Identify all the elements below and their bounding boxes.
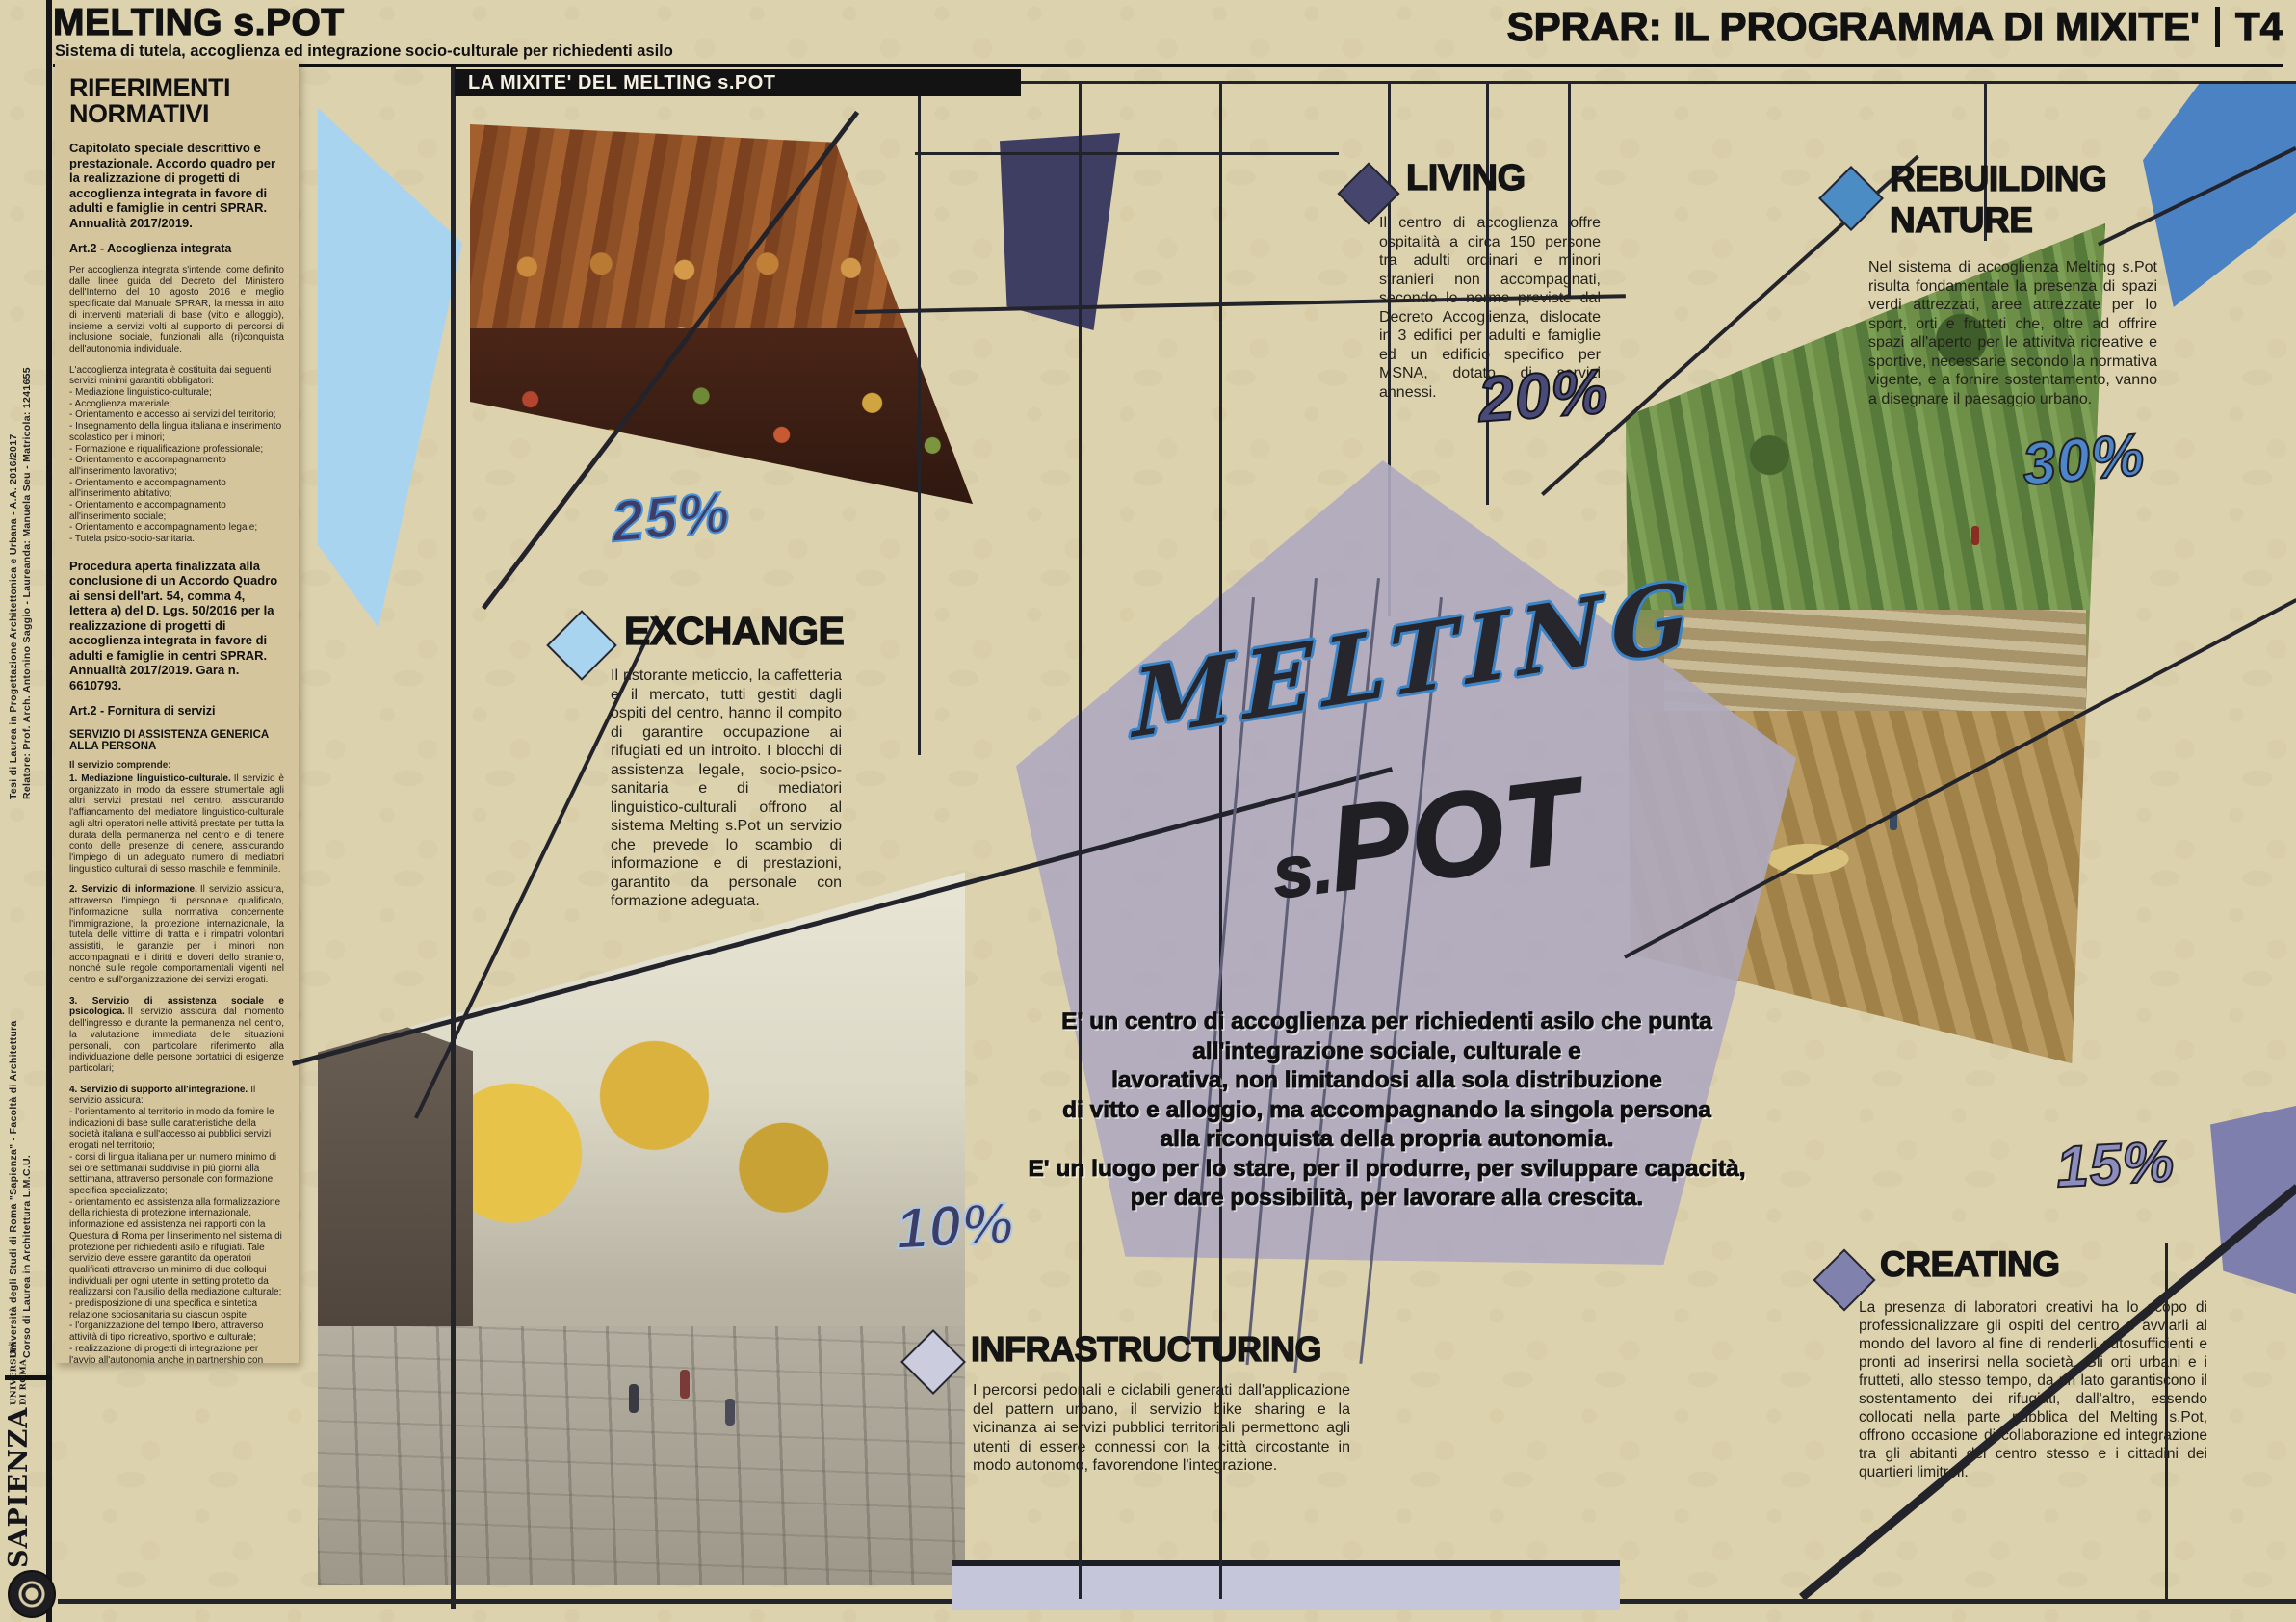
exchange-text: Il ristorante meticcio, la caffetteria e… — [611, 667, 842, 911]
thesis-credit-line-2: Relatore: Prof. Arch. Antonino Saggio - … — [21, 222, 33, 799]
service-item: 1. Mediazione linguistico-culturale.Il s… — [69, 773, 284, 875]
page-title: MELTING s.POT — [53, 2, 345, 44]
sheet-number: T4 — [2235, 4, 2283, 50]
frame-left-line — [451, 67, 456, 1609]
sapienza-logo-sub: UNIVERSITÀ DI ROMA — [10, 1341, 29, 1405]
sidebar-paragraph: Per accoglienza integrata s'intende, com… — [69, 265, 284, 355]
infrastructuring-title: INFRASTRUCTURING — [971, 1329, 1321, 1370]
grid-line — [918, 81, 921, 755]
sidebar-art2: Art.2 - Fornitura di servizi — [69, 704, 284, 718]
exchange-percent: 25% — [609, 479, 733, 555]
living-title: LIVING — [1406, 158, 1526, 199]
garden-person — [1971, 526, 1979, 545]
service-item: 2. Servizio di informazione.Il servizio … — [69, 884, 284, 985]
service-item: 4. Servizio di supporto all'integrazione… — [69, 1085, 284, 1363]
header-divider — [2215, 7, 2220, 47]
normative-sidebar: RIFERIMENTI NORMATIVI Capitolato special… — [55, 60, 299, 1363]
rebuilding-percent: 30% — [2020, 421, 2148, 500]
grid-line — [915, 152, 1339, 155]
living-percent: 20% — [1476, 353, 1611, 435]
center-description: E' un centro di accoglienza per richiede… — [1021, 1007, 1753, 1214]
exchange-title: EXCHANGE — [624, 609, 844, 654]
mixite-strip-title: LA MIXITE' DEL MELTING s.POT — [455, 69, 1021, 96]
university-line-2: Corso di Laurea in Architettura L.M.C.U. — [21, 819, 33, 1358]
rebuilding-title: REBUILDING NATURE — [1890, 158, 2179, 241]
page-subtitle: Sistema di tutela, accoglienza ed integr… — [55, 42, 673, 61]
street-person-3 — [725, 1399, 735, 1426]
thesis-credit-line-1: Tesi di Laurea in Progettazione Architet… — [8, 222, 19, 799]
sapienza-seal-icon — [8, 1570, 56, 1618]
sidebar-list: L'accoglienza integrata è costituita dai… — [69, 365, 284, 545]
sidebar-lead: Capitolato speciale descrittivo e presta… — [69, 141, 284, 230]
creating-title: CREATING — [1880, 1244, 2059, 1285]
street-paving — [318, 1326, 965, 1585]
garden-path — [1664, 610, 2086, 711]
sidebar-heading: RIFERIMENTI NORMATIVI — [69, 75, 284, 127]
thesis-poster: MELTING s.POT Sistema di tutela, accogli… — [0, 0, 2296, 1622]
street-person — [629, 1384, 639, 1413]
sidebar-art1: Art.2 - Accoglienza integrata — [69, 242, 284, 255]
frame-top-line — [1016, 81, 2296, 84]
grid-line — [1079, 81, 1082, 1599]
street-person-2 — [680, 1370, 690, 1399]
bottom-lavender-rect — [952, 1560, 1620, 1610]
rebuilding-text: Nel sistema di accoglienza Melting s.Pot… — [1868, 258, 2157, 408]
service-item: 3. Servizio di assistenza sociale e psic… — [69, 996, 284, 1075]
infrastructuring-text: I percorsi pedonali e ciclabili generati… — [973, 1381, 1350, 1476]
right-title: SPRAR: IL PROGRAMMA DI MIXITE' — [1507, 4, 2200, 50]
header-right: SPRAR: IL PROGRAMMA DI MIXITE' T4 — [1507, 4, 2283, 50]
sidebar-procedura: Procedura aperta finalizzata alla conclu… — [69, 559, 284, 693]
creating-percent: 15% — [2054, 1128, 2177, 1200]
sidebar-comprende: Il servizio comprende: — [69, 760, 284, 772]
creating-text: La presenza di laboratori creativi ha lo… — [1859, 1298, 2207, 1481]
infrastructuring-percent: 10% — [894, 1190, 1016, 1262]
sidebar-service-heading: SERVIZIO DI ASSISTENZA GENERICA ALLA PER… — [69, 729, 284, 752]
sapienza-logo-name: SAPIENZA — [4, 1407, 34, 1568]
header-rule — [53, 64, 2283, 67]
university-line-1: Università degli Studi di Roma "Sapienza… — [8, 819, 19, 1358]
sapienza-logo: SAPIENZA UNIVERSITÀ DI ROMA — [4, 1385, 34, 1568]
